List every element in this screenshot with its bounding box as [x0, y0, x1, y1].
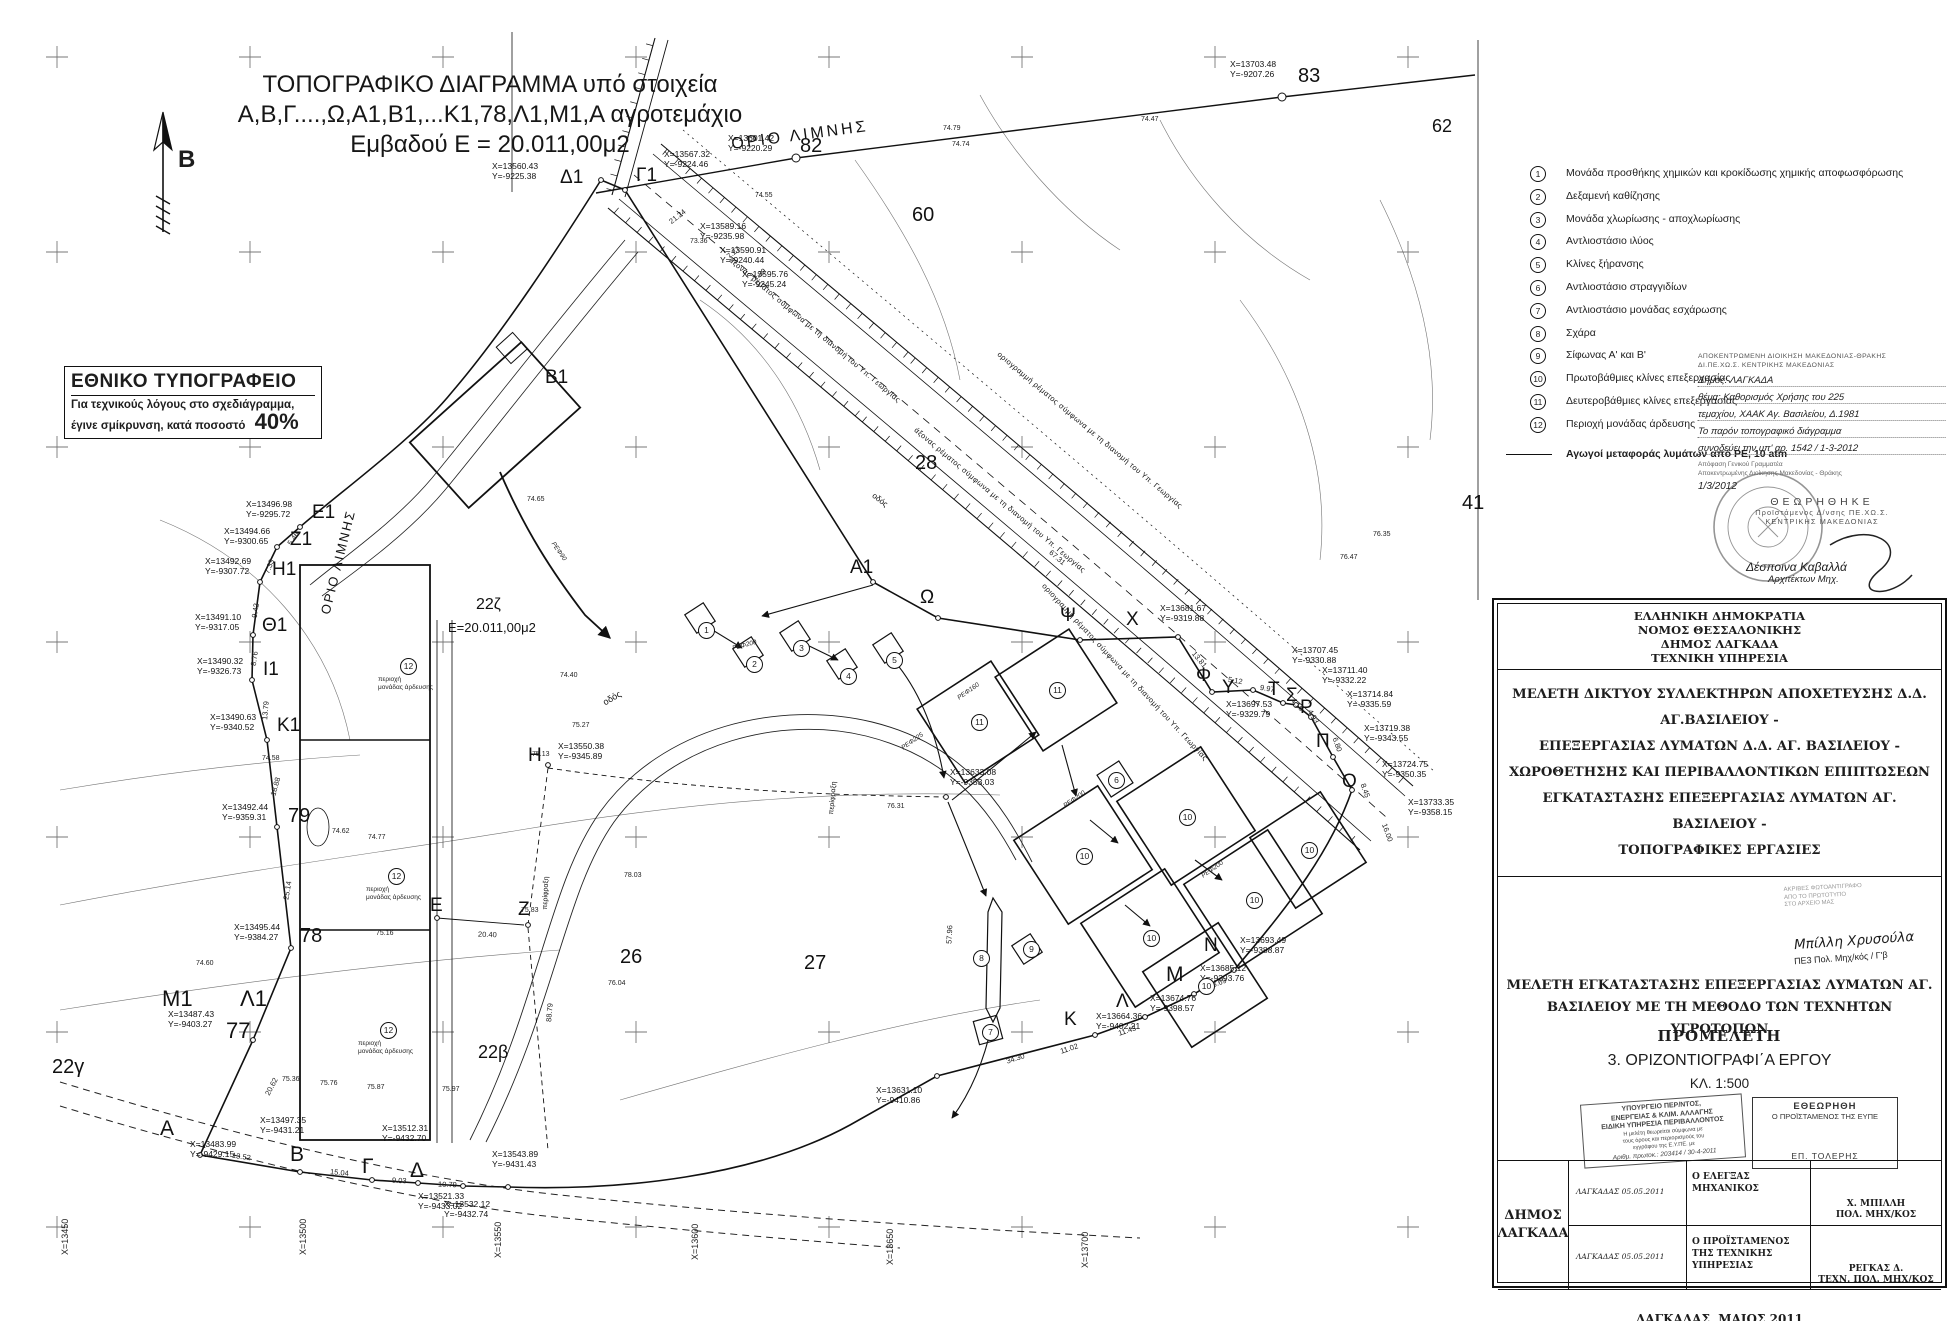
legend-item: 1Μονάδα προσθήκης χημικών και κροκίδωσης…	[1530, 166, 1947, 189]
legend-item-label: Μονάδα χλωρίωσης - αποχλωρίωσης	[1566, 213, 1740, 225]
drawing-name: 3. ΟΡΙΖΟΝΤΙΟΓΡΑΦΙ΄Α ΕΡΓΟΥ	[1498, 1052, 1941, 1070]
title-block-footer: ΛΑΓΚΑΔΑΣ, ΜΑΙΟΣ 2011	[1498, 1289, 1941, 1321]
map-title-line2: Α,Β,Γ....,Ω,Α1,Β1,...Κ1,78,Λ1,Μ1,Α αγροτ…	[165, 100, 815, 130]
legend-item-number: 3	[1530, 212, 1546, 228]
date-cell-2: ΛΑΓΚΑΔΑΣ 05.05.2011	[1568, 1225, 1687, 1290]
reduction-percent: 40%	[255, 415, 299, 428]
drawing-scale: ΚΛ. 1:500	[1498, 1076, 1941, 1091]
approval-seen: ΘΕΩΡΗΘΗΚΕ	[1698, 496, 1946, 508]
municipality-cell: ΔΗΜΟΣ ΛΑΓΚΑΔΑ	[1498, 1161, 1569, 1289]
legend-item-number: 2	[1530, 189, 1546, 205]
irrigation-strips	[300, 565, 430, 1140]
small-units	[685, 603, 1133, 1045]
legend-item-number: 11	[1530, 394, 1546, 410]
legend-item-label: Περιοχή μονάδας άρδευσης	[1566, 418, 1695, 430]
legend-item-number: 8	[1530, 326, 1546, 342]
legend-item: 2Δεξαμενή καθίζησης	[1530, 189, 1947, 212]
legend-item: 7Αντλιοστάσιο μονάδας εσχάρωσης	[1530, 303, 1947, 326]
legend-item-label: Αντλιοστάσιο στραγγιδίων	[1566, 281, 1687, 293]
legend-item-number: 12	[1530, 417, 1546, 433]
approval-date: 1/3/2012	[1698, 481, 1946, 492]
role-cell-1: Ο ΕΛΕΓΞΑΣ ΜΗΧΑΝΙΚΟΣ	[1686, 1161, 1811, 1225]
approval-field: συνοδεύει την υπ' αρ. 1542 / 1-3-2012	[1698, 443, 1947, 455]
title-block: ΕΛΛΗΝΙΚΗ ΔΗΜΟΚΡΑΤΙΑ ΝΟΜΟΣ ΘΕΣΣΑΛΟΝΙΚΗΣ Δ…	[1492, 598, 1947, 1288]
reduction-note-box: ΕΘΝΙΚΟ ΤΥΠΟΓΡΑΦΕΙΟ Για τεχνικούς λόγους …	[64, 366, 322, 439]
legend-item-number: 1	[1530, 166, 1546, 182]
reduction-line2: έγινε σμίκρυνση, κατά ποσοστό 40%	[71, 415, 315, 433]
legend-item-label: Αντλιοστάσιο μονάδας εσχάρωσης	[1566, 304, 1727, 316]
stream-hatching	[607, 44, 1404, 842]
legend-item: 6Αντλιοστάσιο στραγγιδίων	[1530, 280, 1947, 303]
approval-fields: Δήμος: ΛΑΓΚΑΔΑθέμα: Καθορισμός Χρήσης το…	[1698, 375, 1946, 455]
legend-item-number: 10	[1530, 371, 1546, 387]
copy-certification: ΑΚΡΙΒΕΣ ΦΩΤΟΑΝΤΙΓΡΑΦΟ ΑΠΟ ΤΟ ΠΡΩΤΟΤΥΠΟ Σ…	[1783, 883, 1862, 910]
approval-field: Το παρόν τοπογραφικό διάγραμμα	[1698, 426, 1947, 438]
role-cell-2: Ο ΠΡΟΪΣΤΑΜΕΝΟΣ ΤΗΣ ΤΕΧΝΙΚΗΣ ΥΠΗΡΕΣΙΑΣ	[1686, 1225, 1811, 1290]
signature-cell-2: ΡΕΓΚΑΣ Δ. ΤΕΧΝ. ΠΟΛ. ΜΗΧ/ΚΟΣ	[1810, 1225, 1942, 1290]
approval-seen2: ΚΕΝΤΡΙΚΗΣ ΜΑΚΕΔΟΝΙΑΣ	[1698, 517, 1946, 526]
approval-signer: Δέσποινα Καβαλλά	[1746, 560, 1946, 574]
legend-item-label: Σχάρα	[1566, 327, 1596, 339]
primary-beds	[1014, 747, 1366, 1047]
approval-field: Δήμος: ΛΑΓΚΑΔΑ	[1698, 375, 1947, 387]
legend-pipe-line-sample	[1506, 454, 1552, 455]
approval-agency1: ΑΠΟΚΕΝΤΡΩΜΕΝΗ ΔΙΟΙΚΗΣΗ ΜΑΚΕΔΟΝΙΑΣ-ΘΡΑΚΗΣ	[1698, 352, 1946, 361]
reduction-title: ΕΘΝΙΚΟ ΤΥΠΟΓΡΑΦΕΙΟ	[71, 371, 315, 396]
legend-item-label: Αντλιοστάσιο ιλύος	[1566, 235, 1654, 247]
title-block-middle: ΑΚΡΙΒΕΣ ΦΩΤΟΑΝΤΙΓΡΑΦΟ ΑΠΟ ΤΟ ΠΡΩΤΟΤΥΠΟ Σ…	[1498, 877, 1941, 1160]
government-header: ΕΛΛΗΝΙΚΗ ΔΗΜΟΚΡΑΤΙΑ ΝΟΜΟΣ ΘΕΣΣΑΛΟΝΙΚΗΣ Δ…	[1498, 604, 1941, 670]
study-stage: ΠΡΟΜΕΛΕΤΗ	[1498, 1027, 1941, 1045]
approval-field: τεμαχίου, ΧΑΑΚ Αγ. Βασιλείου, Δ.1981	[1698, 409, 1947, 421]
legend-item: 5Κλίνες ξήρανσης	[1530, 257, 1947, 280]
map-title-line3: Εμβαδού Ε = 20.011,00μ2	[165, 130, 815, 160]
legend-item-number: 5	[1530, 257, 1546, 273]
north-label: Β	[178, 146, 195, 174]
engineer-signature-name: Μπίλλη Χρυσούλα	[1794, 929, 1915, 953]
legend-item: 4Αντλιοστάσιο ιλύος	[1530, 234, 1947, 257]
survey-lines	[437, 32, 1478, 1150]
approval-note1: Απόφαση Γενικού Γραμματέα	[1698, 461, 1946, 470]
map-title-line1: ΤΟΠΟΓΡΑΦΙΚΟ ΔΙΑΓΡΑΜΜΑ υπό στοιχεία	[165, 70, 815, 100]
legend-item-label: Κλίνες ξήρανσης	[1566, 258, 1644, 270]
legend-item-label: Δεξαμενή καθίζησης	[1566, 190, 1660, 202]
ministry-stamp: ΥΠΟΥΡΓΕΙΟ ΠΕΡ/ΝΤΟΣ, ΕΝΕΡΓΕΙΑΣ & ΚΛΙΜ. ΑΛ…	[1580, 1093, 1746, 1168]
project-title: ΜΕΛΕΤΗ ΔΙΚΤΥΟΥ ΣΥΛΛΕΚΤΗΡΩΝ ΑΠΟΧΕΤΕΥΣΗΣ Δ…	[1498, 670, 1941, 877]
title-block-inner: ΕΛΛΗΝΙΚΗ ΔΗΜΟΚΡΑΤΙΑ ΝΟΜΟΣ ΘΕΣΣΑΛΟΝΙΚΗΣ Δ…	[1497, 603, 1942, 1283]
signature-cell-1: Χ. ΜΠΙΛΛΗ ΠΟΛ. ΜΗΧ/ΚΟΣ	[1810, 1161, 1942, 1225]
etheorithi-stamp: ΕΘΕΩΡΗΘΗ Ο ΠΡΟΪΣΤΑΜΕΝΟΣ ΤΗΣ ΕΥΠΕ ΕΠ. ΤΟΛ…	[1752, 1097, 1898, 1169]
approval-field: θέμα: Καθορισμός Χρήσης του 225	[1698, 392, 1947, 404]
secondary-beds	[917, 629, 1117, 783]
legend-item-number: 9	[1530, 348, 1546, 364]
building-b1	[401, 332, 580, 507]
map-title: ΤΟΠΟΓΡΑΦΙΚΟ ΔΙΑΓΡΑΜΜΑ υπό στοιχεία Α,Β,Γ…	[165, 70, 815, 160]
legend-item-label: Μονάδα προσθήκης χημικών και κροκίδωσης …	[1566, 167, 1903, 179]
approval-seen1: Προϊστάμενος Δ/νσης ΠΕ.ΧΩ.Σ.	[1698, 508, 1946, 517]
drawing-sheet: ΤΟΠΟΓΡΑΦΙΚΟ ΔΙΑΓΡΑΜΜΑ υπό στοιχεία Α,Β,Γ…	[0, 0, 1947, 1321]
legend-item-number: 7	[1530, 303, 1546, 319]
approval-note2: Αποκεντρωμένης Διοίκησης Μακεδονίας - Θρ…	[1698, 470, 1946, 479]
approval-agency2: ΔΙ.ΠΕ.ΧΩ.Σ. ΚΕΝΤΡΙΚΗΣ ΜΑΚΕΔΟΝΙΑΣ	[1698, 361, 1946, 370]
legend-item-number: 4	[1530, 234, 1546, 250]
approval-stamp-block: ΑΠΟΚΕΝΤΡΩΜΕΝΗ ΔΙΟΙΚΗΣΗ ΜΑΚΕΔΟΝΙΑΣ-ΘΡΑΚΗΣ…	[1698, 352, 1946, 585]
survey-point-dots	[198, 178, 1355, 1190]
legend-item: 8Σχάρα	[1530, 326, 1947, 349]
approval-signer-title: Αρχιτέκτων Μηχ.	[1768, 574, 1946, 585]
legend-item: 3Μονάδα χλωρίωσης - αποχλωρίωσης	[1530, 212, 1947, 235]
approval-table: ΔΗΜΟΣ ΛΑΓΚΑΔΑ ΛΑΓΚΑΔΑΣ 05.05.2011 Ο ΕΛΕΓ…	[1498, 1160, 1941, 1289]
legend-item-number: 6	[1530, 280, 1546, 296]
legend-item-label: Σίφωνας Α' και Β'	[1566, 349, 1646, 361]
date-cell-1: ΛΑΓΚΑΔΑΣ 05.05.2011	[1568, 1161, 1687, 1225]
